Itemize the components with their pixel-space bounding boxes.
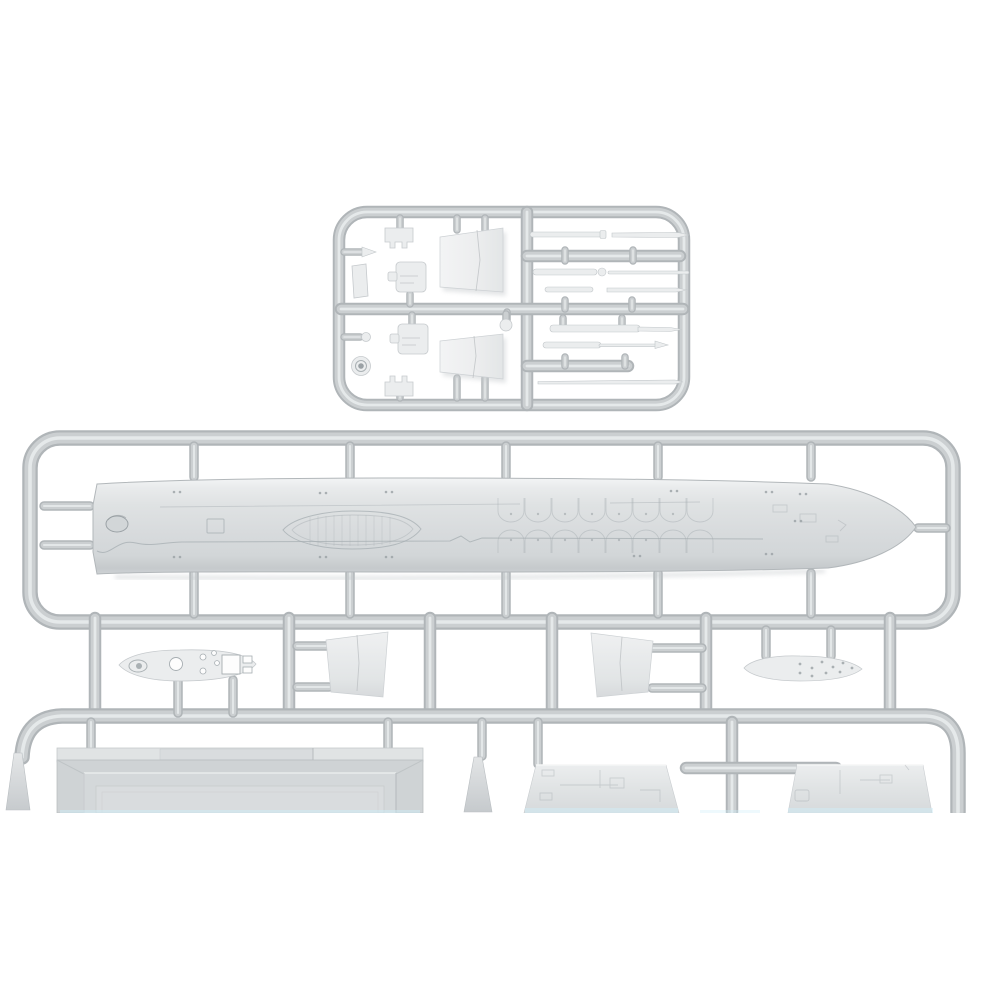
funnel-casing-half-left — [326, 632, 388, 697]
funnel-side-panel-1 — [440, 228, 506, 296]
searchlight-drum — [352, 357, 371, 376]
small-knob-part — [362, 333, 371, 342]
sprue-photo — [0, 0, 1000, 1000]
ship-hull-part — [93, 478, 916, 574]
gun-turret-2 — [390, 324, 428, 354]
superstructure-side-right — [788, 765, 932, 813]
detail-sprue — [339, 212, 689, 405]
bridge-deck-notched-1 — [385, 228, 413, 248]
photo-bottom-margin — [0, 813, 1000, 1000]
sprue-gate-cone — [362, 247, 376, 257]
superstructure-block — [352, 264, 368, 298]
bridge-deck-notched-2 — [385, 376, 413, 396]
hull-sprue — [30, 438, 953, 622]
funnel-casing-half-right — [591, 633, 653, 697]
photo-canvas: Product photograph of unpainted light-gr… — [0, 0, 1000, 1000]
deckhouse-roof-panel — [57, 748, 423, 813]
superstructure-side-left — [524, 765, 679, 813]
ships-boat-hull — [744, 656, 862, 681]
gun-turret-1 — [388, 262, 426, 292]
ventilator-cone-2 — [464, 757, 492, 812]
funnel-side-panel-2 — [440, 334, 506, 383]
lower-sprues — [6, 618, 958, 813]
